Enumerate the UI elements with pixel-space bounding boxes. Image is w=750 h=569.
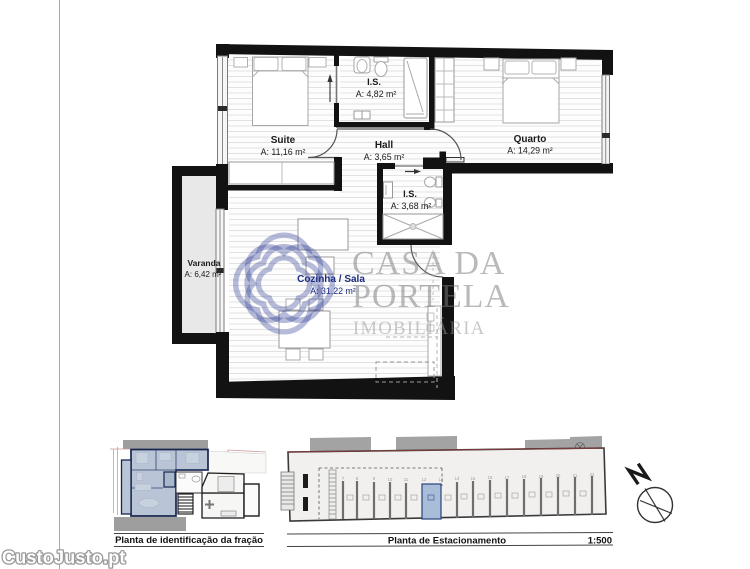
svg-text:18: 18 bbox=[522, 474, 527, 479]
svg-text:Hall: Hall bbox=[375, 140, 394, 151]
svg-text:Suite: Suite bbox=[271, 135, 296, 146]
svg-text:16: 16 bbox=[488, 475, 493, 480]
svg-text:A: 4,82 m²: A: 4,82 m² bbox=[356, 89, 397, 99]
svg-text:Planta de Estacionamento: Planta de Estacionamento bbox=[388, 536, 506, 547]
svg-text:A: 3,65 m²: A: 3,65 m² bbox=[364, 152, 405, 162]
svg-text:Varanda: Varanda bbox=[187, 258, 220, 268]
svg-text:A: 11,16 m²: A: 11,16 m² bbox=[261, 147, 306, 157]
svg-text:13: 13 bbox=[439, 477, 444, 482]
svg-text:21: 21 bbox=[573, 473, 578, 478]
svg-text:A: 3,68 m²: A: 3,68 m² bbox=[391, 201, 432, 211]
svg-text:12: 12 bbox=[422, 477, 427, 482]
svg-text:A: 6,42 m²: A: 6,42 m² bbox=[185, 270, 222, 279]
svg-text:19: 19 bbox=[539, 474, 544, 479]
svg-text:CASA DA: CASA DA bbox=[352, 245, 505, 282]
svg-text:20: 20 bbox=[556, 473, 561, 478]
svg-text:IMOBILIÁRIA: IMOBILIÁRIA bbox=[353, 317, 486, 339]
svg-text:22: 22 bbox=[590, 472, 595, 477]
svg-text:A: 14,29 m²: A: 14,29 m² bbox=[507, 146, 553, 156]
svg-text:14: 14 bbox=[455, 476, 460, 481]
svg-text:CustoJusto.pt: CustoJusto.pt bbox=[2, 548, 126, 568]
svg-text:11: 11 bbox=[404, 477, 409, 482]
svg-text:I.S.: I.S. bbox=[367, 77, 381, 87]
svg-text:I.S.: I.S. bbox=[403, 189, 417, 199]
svg-text:15: 15 bbox=[471, 476, 476, 481]
svg-text:PORTELA: PORTELA bbox=[352, 278, 510, 315]
svg-text:Planta de identificação da fra: Planta de identificação da fração bbox=[115, 535, 263, 546]
svg-text:10: 10 bbox=[388, 477, 393, 482]
svg-text:Quarto: Quarto bbox=[514, 134, 547, 145]
svg-text:17: 17 bbox=[505, 475, 510, 480]
